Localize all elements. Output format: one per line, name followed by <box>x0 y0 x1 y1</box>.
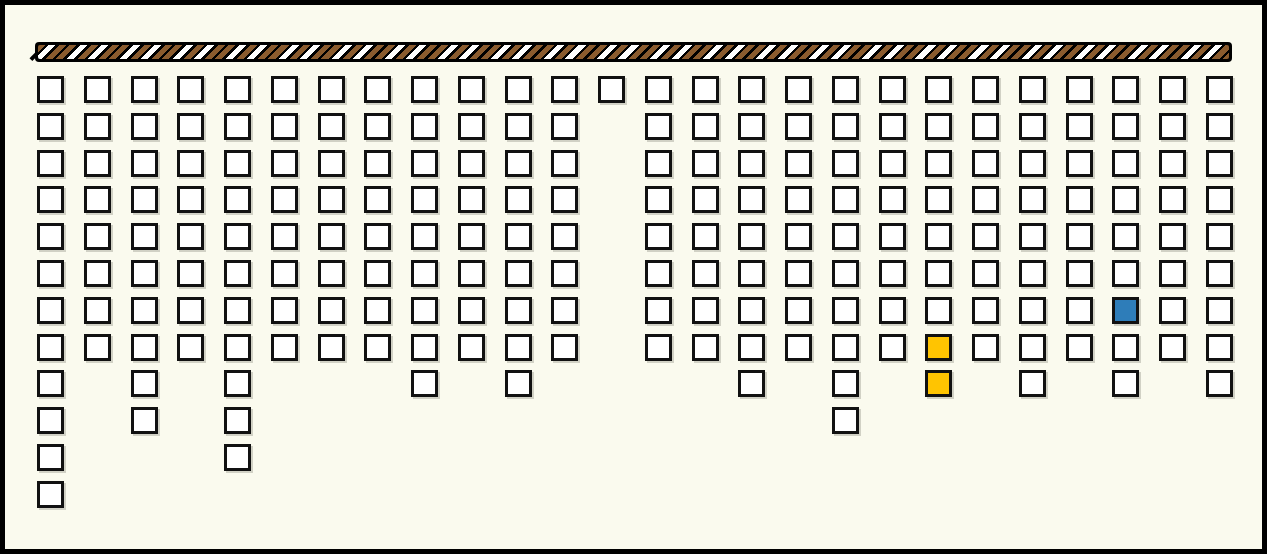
grid-cell[interactable] <box>785 76 812 103</box>
grid-cell[interactable] <box>972 260 999 287</box>
grid-cell[interactable] <box>832 223 859 250</box>
grid-cell[interactable] <box>1019 113 1046 140</box>
grid-cell[interactable] <box>364 297 391 324</box>
grid-cell[interactable] <box>224 76 251 103</box>
grid-cell[interactable] <box>925 113 952 140</box>
grid-cell[interactable] <box>318 297 345 324</box>
grid-cell[interactable] <box>925 260 952 287</box>
grid-cell[interactable] <box>1066 76 1093 103</box>
grid-cell[interactable] <box>131 260 158 287</box>
grid-cell[interactable] <box>1159 334 1186 361</box>
grid-cell[interactable] <box>84 334 111 361</box>
grid-cell[interactable] <box>972 334 999 361</box>
grid-cell[interactable] <box>738 260 765 287</box>
grid-cell[interactable] <box>1206 113 1233 140</box>
grid-cell[interactable] <box>411 186 438 213</box>
grid-cell[interactable] <box>1206 334 1233 361</box>
grid-cell[interactable] <box>84 223 111 250</box>
grid-cell[interactable] <box>458 297 485 324</box>
grid-cell[interactable] <box>832 113 859 140</box>
grid-cell[interactable] <box>364 113 391 140</box>
grid-cell[interactable] <box>1159 186 1186 213</box>
grid-cell[interactable] <box>1206 186 1233 213</box>
grid-cell[interactable] <box>1206 150 1233 177</box>
grid-cell[interactable] <box>692 297 719 324</box>
grid-cell[interactable] <box>1112 223 1139 250</box>
grid-cell[interactable] <box>458 334 485 361</box>
grid-cell[interactable] <box>738 76 765 103</box>
grid-cell[interactable] <box>785 297 812 324</box>
grid-cell[interactable] <box>925 223 952 250</box>
grid-cell[interactable] <box>364 186 391 213</box>
grid-cell[interactable] <box>318 223 345 250</box>
grid-cell[interactable] <box>879 223 906 250</box>
grid-cell[interactable] <box>131 76 158 103</box>
grid-cell[interactable] <box>131 334 158 361</box>
grid-cell[interactable] <box>551 223 578 250</box>
grid-cell[interactable] <box>551 186 578 213</box>
grid-cell[interactable] <box>318 113 345 140</box>
grid-cell[interactable] <box>224 370 251 397</box>
grid-cell[interactable] <box>1066 186 1093 213</box>
grid-cell[interactable] <box>1206 260 1233 287</box>
grid-cell[interactable] <box>1112 113 1139 140</box>
grid-cell[interactable] <box>411 113 438 140</box>
grid-cell[interactable] <box>645 260 672 287</box>
grid-cell[interactable] <box>1206 370 1233 397</box>
grid-cell[interactable] <box>84 186 111 213</box>
grid-cell[interactable] <box>224 444 251 471</box>
grid-cell[interactable] <box>832 407 859 434</box>
grid-cell[interactable] <box>1206 76 1233 103</box>
grid-cell[interactable] <box>879 297 906 324</box>
grid-cell[interactable] <box>972 223 999 250</box>
grid-cell[interactable] <box>271 113 298 140</box>
grid-cell[interactable] <box>692 150 719 177</box>
grid-cell[interactable] <box>1019 223 1046 250</box>
grid-cell[interactable] <box>785 150 812 177</box>
grid-cell[interactable] <box>1112 76 1139 103</box>
grid-cell[interactable] <box>832 150 859 177</box>
grid-cell[interactable] <box>364 150 391 177</box>
grid-cell[interactable] <box>411 150 438 177</box>
grid-cell[interactable] <box>1019 334 1046 361</box>
grid-cell[interactable] <box>598 76 625 103</box>
grid-cell[interactable] <box>1112 334 1139 361</box>
grid-cell[interactable] <box>318 186 345 213</box>
grid-cell[interactable] <box>505 150 532 177</box>
grid-cell[interactable] <box>1112 370 1139 397</box>
grid-cell[interactable] <box>972 113 999 140</box>
grid-cell[interactable] <box>364 76 391 103</box>
grid-cell[interactable] <box>645 223 672 250</box>
grid-cell[interactable] <box>785 113 812 140</box>
grid-cell[interactable] <box>177 186 204 213</box>
grid-cell[interactable] <box>551 150 578 177</box>
grid-cell[interactable] <box>84 113 111 140</box>
grid-cell[interactable] <box>458 260 485 287</box>
grid-cell[interactable] <box>972 150 999 177</box>
grid-cell[interactable] <box>785 223 812 250</box>
grid-cell[interactable] <box>224 297 251 324</box>
grid-cell[interactable] <box>1159 297 1186 324</box>
grid-cell[interactable] <box>37 370 64 397</box>
grid-cell[interactable] <box>832 334 859 361</box>
grid-cell[interactable] <box>551 334 578 361</box>
grid-cell[interactable] <box>411 297 438 324</box>
grid-cell[interactable] <box>37 407 64 434</box>
grid-cell[interactable] <box>551 260 578 287</box>
grid-cell[interactable] <box>37 223 64 250</box>
grid-cell[interactable] <box>832 260 859 287</box>
grid-cell[interactable] <box>84 297 111 324</box>
grid-cell[interactable] <box>925 150 952 177</box>
grid-cell[interactable] <box>505 260 532 287</box>
grid-cell[interactable] <box>738 186 765 213</box>
grid-cell[interactable] <box>645 150 672 177</box>
grid-cell[interactable] <box>224 113 251 140</box>
grid-cell[interactable] <box>1159 113 1186 140</box>
grid-cell[interactable] <box>131 113 158 140</box>
grid-cell[interactable] <box>972 76 999 103</box>
grid-cell[interactable] <box>738 370 765 397</box>
grid-cell[interactable] <box>645 334 672 361</box>
grid-cell[interactable] <box>1066 334 1093 361</box>
grid-cell[interactable] <box>692 76 719 103</box>
grid-cell[interactable] <box>37 186 64 213</box>
grid-cell[interactable] <box>458 76 485 103</box>
grid-cell[interactable] <box>1066 113 1093 140</box>
grid-cell[interactable] <box>271 334 298 361</box>
grid-cell[interactable] <box>505 223 532 250</box>
grid-cell[interactable] <box>131 150 158 177</box>
grid-cell[interactable] <box>224 407 251 434</box>
grid-cell[interactable] <box>738 334 765 361</box>
grid-cell[interactable] <box>37 444 64 471</box>
grid-cell[interactable] <box>224 334 251 361</box>
grid-cell[interactable] <box>1066 150 1093 177</box>
grid-cell[interactable] <box>551 113 578 140</box>
grid-cell[interactable] <box>738 223 765 250</box>
grid-cell[interactable] <box>1206 297 1233 324</box>
grid-cell[interactable] <box>318 334 345 361</box>
grid-cell[interactable] <box>505 76 532 103</box>
grid-cell[interactable] <box>692 334 719 361</box>
grid-cell[interactable] <box>738 297 765 324</box>
outer-frame <box>0 0 1267 554</box>
grid-cell[interactable] <box>1112 260 1139 287</box>
highlighted-cell-gold[interactable] <box>925 370 952 397</box>
grid-cell[interactable] <box>785 334 812 361</box>
grid-cell[interactable] <box>645 186 672 213</box>
grid-cell[interactable] <box>177 297 204 324</box>
grid-cell[interactable] <box>972 186 999 213</box>
grid-cell[interactable] <box>411 334 438 361</box>
grid-cell[interactable] <box>785 260 812 287</box>
grid-cell[interactable] <box>37 481 64 508</box>
grid-cell[interactable] <box>738 150 765 177</box>
grid-cell[interactable] <box>271 186 298 213</box>
grid-cell[interactable] <box>692 260 719 287</box>
grid-cell[interactable] <box>318 150 345 177</box>
grid-cell[interactable] <box>364 260 391 287</box>
grid-cell[interactable] <box>551 297 578 324</box>
grid-cell[interactable] <box>224 223 251 250</box>
grid-cell[interactable] <box>832 370 859 397</box>
grid-cell[interactable] <box>84 150 111 177</box>
grid-cell[interactable] <box>692 113 719 140</box>
grid-cell[interactable] <box>879 186 906 213</box>
grid-cell[interactable] <box>738 113 765 140</box>
grid-cell[interactable] <box>1112 150 1139 177</box>
grid-cell[interactable] <box>785 186 812 213</box>
grid-cell[interactable] <box>925 297 952 324</box>
grid-cell[interactable] <box>1066 223 1093 250</box>
grid-cell[interactable] <box>458 150 485 177</box>
grid-cell[interactable] <box>972 297 999 324</box>
grid-cell[interactable] <box>411 76 438 103</box>
grid-cell[interactable] <box>505 113 532 140</box>
cell-grid <box>5 5 1262 549</box>
grid-cell[interactable] <box>271 223 298 250</box>
grid-cell[interactable] <box>645 76 672 103</box>
grid-cell[interactable] <box>131 223 158 250</box>
grid-cell[interactable] <box>1019 150 1046 177</box>
grid-cell[interactable] <box>224 186 251 213</box>
grid-cell[interactable] <box>1066 260 1093 287</box>
grid-cell[interactable] <box>551 76 578 103</box>
grid-cell[interactable] <box>879 334 906 361</box>
grid-cell[interactable] <box>131 370 158 397</box>
grid-cell[interactable] <box>1159 260 1186 287</box>
grid-cell[interactable] <box>1019 260 1046 287</box>
grid-cell[interactable] <box>271 260 298 287</box>
grid-cell[interactable] <box>505 334 532 361</box>
grid-cell[interactable] <box>505 186 532 213</box>
grid-cell[interactable] <box>364 223 391 250</box>
grid-cell[interactable] <box>411 260 438 287</box>
grid-cell[interactable] <box>879 113 906 140</box>
grid-cell[interactable] <box>458 223 485 250</box>
grid-cell[interactable] <box>1159 223 1186 250</box>
grid-cell[interactable] <box>131 407 158 434</box>
grid-cell[interactable] <box>1206 223 1233 250</box>
grid-cell[interactable] <box>318 260 345 287</box>
grid-cell[interactable] <box>177 150 204 177</box>
grid-cell[interactable] <box>1019 297 1046 324</box>
grid-cell[interactable] <box>1019 370 1046 397</box>
grid-cell[interactable] <box>832 297 859 324</box>
grid-cell[interactable] <box>411 223 438 250</box>
grid-cell[interactable] <box>411 370 438 397</box>
grid-cell[interactable] <box>1019 186 1046 213</box>
grid-cell[interactable] <box>177 113 204 140</box>
grid-cell[interactable] <box>224 260 251 287</box>
grid-cell[interactable] <box>1066 297 1093 324</box>
grid-cell[interactable] <box>505 370 532 397</box>
grid-cell[interactable] <box>879 150 906 177</box>
grid-cell[interactable] <box>37 76 64 103</box>
grid-cell[interactable] <box>84 76 111 103</box>
grid-cell[interactable] <box>271 297 298 324</box>
grid-cell[interactable] <box>879 260 906 287</box>
grid-cell[interactable] <box>177 223 204 250</box>
grid-cell[interactable] <box>364 334 391 361</box>
highlighted-cell-blue[interactable] <box>1112 297 1139 324</box>
grid-cell[interactable] <box>1159 150 1186 177</box>
grid-cell[interactable] <box>37 150 64 177</box>
grid-cell[interactable] <box>645 297 672 324</box>
grid-cell[interactable] <box>505 297 532 324</box>
grid-cell[interactable] <box>37 297 64 324</box>
grid-cell[interactable] <box>645 113 672 140</box>
grid-cell[interactable] <box>692 223 719 250</box>
grid-cell[interactable] <box>1159 76 1186 103</box>
grid-cell[interactable] <box>832 76 859 103</box>
grid-cell[interactable] <box>271 76 298 103</box>
grid-cell[interactable] <box>84 260 111 287</box>
grid-cell[interactable] <box>1019 76 1046 103</box>
grid-cell[interactable] <box>925 186 952 213</box>
grid-cell[interactable] <box>832 186 859 213</box>
grid-cell[interactable] <box>925 76 952 103</box>
grid-cell[interactable] <box>177 260 204 287</box>
grid-cell[interactable] <box>177 76 204 103</box>
grid-cell[interactable] <box>37 113 64 140</box>
grid-cell[interactable] <box>1112 186 1139 213</box>
highlighted-cell-gold[interactable] <box>925 334 952 361</box>
grid-cell[interactable] <box>224 150 251 177</box>
grid-cell[interactable] <box>458 113 485 140</box>
grid-cell[interactable] <box>318 76 345 103</box>
grid-cell[interactable] <box>37 260 64 287</box>
grid-cell[interactable] <box>131 297 158 324</box>
grid-cell[interactable] <box>131 186 158 213</box>
grid-cell[interactable] <box>177 334 204 361</box>
grid-cell[interactable] <box>879 76 906 103</box>
grid-cell[interactable] <box>458 186 485 213</box>
grid-cell[interactable] <box>271 150 298 177</box>
grid-cell[interactable] <box>37 334 64 361</box>
grid-cell[interactable] <box>692 186 719 213</box>
